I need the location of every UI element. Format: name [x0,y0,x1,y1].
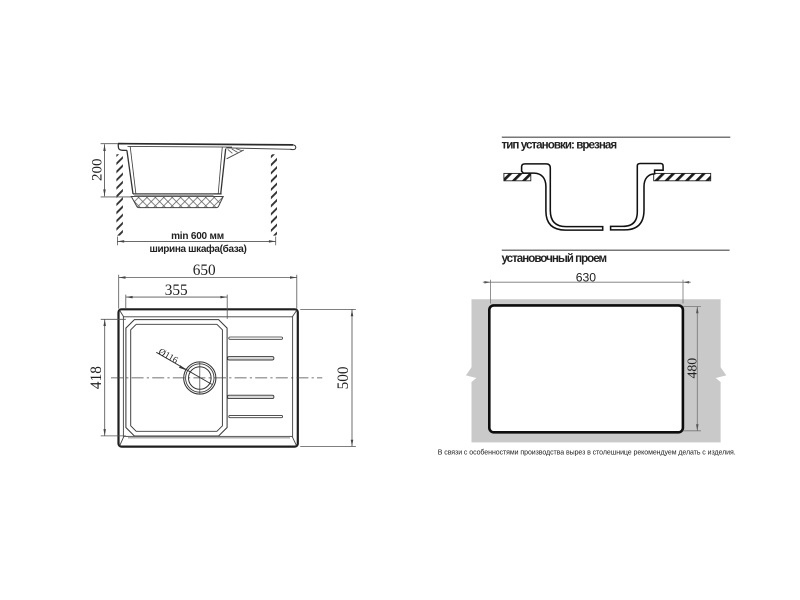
svg-text:418: 418 [88,366,105,389]
svg-text:650: 650 [193,262,216,279]
svg-text:В связи с особенностями произв: В связи с особенностями производства выр… [438,449,736,457]
svg-text:тип установки: врезная: тип установки: врезная [502,139,617,152]
svg-text:200: 200 [90,159,106,182]
svg-text:ширина шкафа(база): ширина шкафа(база) [150,243,247,255]
svg-text:установочный проем: установочный проем [502,252,607,265]
svg-text:500: 500 [335,366,352,389]
svg-text:630: 630 [576,270,597,284]
svg-text:480: 480 [685,358,700,379]
svg-text:min 600 мм: min 600 мм [171,231,224,242]
svg-text:355: 355 [165,282,188,299]
